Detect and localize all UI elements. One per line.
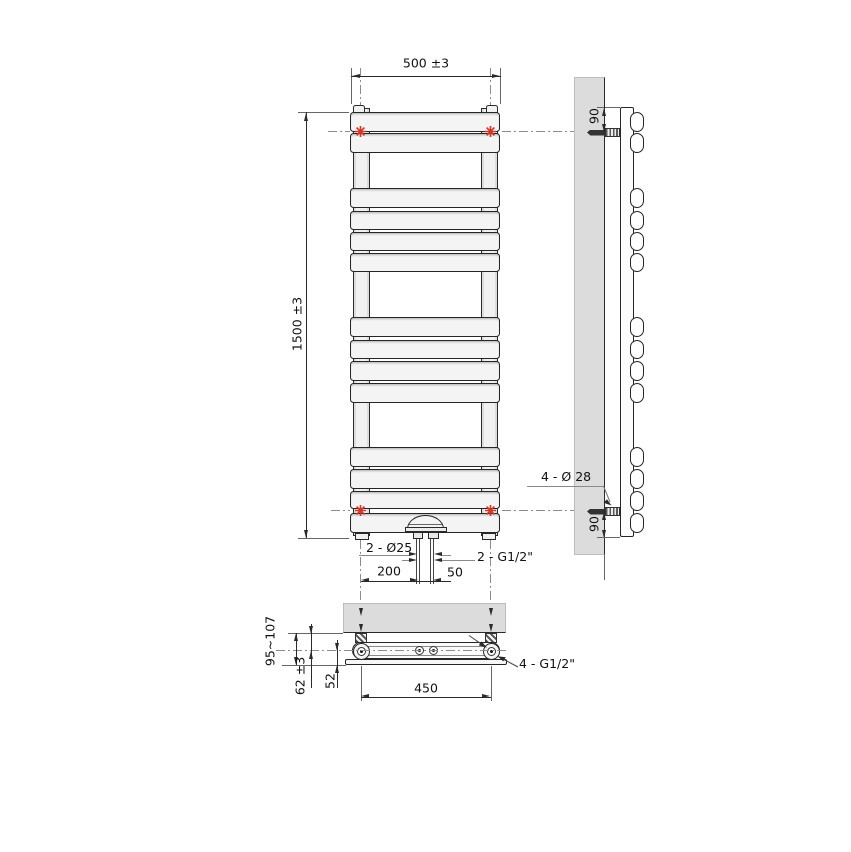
arrowhead xyxy=(335,643,339,651)
radiator-bar xyxy=(350,383,500,403)
screw-arrow xyxy=(489,608,493,616)
arrowhead xyxy=(294,633,298,641)
arrowhead xyxy=(602,108,606,116)
dim-height-label: 1500 ±3 xyxy=(290,297,305,351)
dim-bottom-bracket-label: 90 xyxy=(587,516,602,532)
panel-strip xyxy=(345,659,507,665)
radiator-bar xyxy=(350,361,500,381)
wall-bottom xyxy=(343,603,506,633)
screw-arrow xyxy=(359,624,363,632)
radiator-bar xyxy=(350,317,500,337)
dim-offset-label: 200 xyxy=(377,564,401,579)
dim-top-bracket-label: 90 xyxy=(587,108,602,124)
bar-end-profile xyxy=(630,340,644,359)
dim-width-label: 500 ±3 xyxy=(403,56,449,71)
bar-end-profile xyxy=(630,317,644,337)
arrowhead xyxy=(434,552,442,556)
bracket-bolt-top xyxy=(605,128,620,138)
leader-line xyxy=(441,555,451,556)
bar-end-profile xyxy=(630,232,644,251)
dim-span-label: 450 xyxy=(414,681,438,696)
radiator-bar xyxy=(350,188,500,208)
bar-end-profile xyxy=(630,469,644,489)
mount-centerline-left-top xyxy=(360,68,361,106)
arrowhead xyxy=(304,530,308,538)
bracket-bolt-bottom xyxy=(605,507,620,517)
bracket-axis-bottom-left-seg xyxy=(331,510,350,511)
right-foot xyxy=(482,533,496,540)
arrowhead xyxy=(409,552,417,556)
arrowhead xyxy=(482,694,490,698)
screw-arrow xyxy=(489,624,493,632)
leader-line xyxy=(359,555,410,556)
drawing-sheet: 500 ±3 1500 ±3 2 - Ø25 2 - G1/2" 200 50 xyxy=(0,0,851,852)
radiator-bar xyxy=(350,211,500,230)
arrowhead xyxy=(309,651,313,659)
tube-inner-line xyxy=(368,646,484,647)
arrowhead xyxy=(361,578,369,582)
leader-line xyxy=(441,560,475,561)
bracket-holes-label: 4 - Ø 28 xyxy=(541,469,591,484)
arrowhead xyxy=(602,124,606,132)
arrowhead xyxy=(409,558,417,562)
leader-line xyxy=(527,486,604,487)
arrowhead xyxy=(309,626,313,634)
radiator-bar xyxy=(350,447,500,467)
arrowhead xyxy=(352,74,360,78)
connections-label: 2 - G1/2" xyxy=(477,549,533,564)
screw-arrow xyxy=(359,608,363,616)
valve-nut xyxy=(413,532,424,539)
arrowhead xyxy=(304,113,308,121)
bar-end-profile xyxy=(630,211,644,230)
arrowhead xyxy=(433,578,441,582)
bar-end-profile xyxy=(630,253,644,272)
bracket-axis-top-left-seg xyxy=(328,131,350,132)
valve-plate xyxy=(405,527,447,532)
dim-spacing-label: 50 xyxy=(447,564,463,579)
ext-line xyxy=(500,68,501,104)
radiator-bar xyxy=(350,340,500,359)
wall-face-extension xyxy=(604,555,605,580)
radiator-bar xyxy=(350,491,500,509)
bar-end-profile xyxy=(630,188,644,208)
arrowhead xyxy=(602,512,606,520)
bar-end-profile xyxy=(630,133,644,153)
dim-line-height xyxy=(306,112,307,538)
bar-end-profile xyxy=(630,112,644,132)
radiator-bar xyxy=(350,133,500,153)
dim-line-width xyxy=(351,76,501,77)
tube-inner-line xyxy=(368,655,484,656)
arrowhead xyxy=(434,558,442,562)
radiator-bar xyxy=(350,469,500,489)
arrowhead xyxy=(492,74,500,78)
arrowhead xyxy=(410,578,418,582)
valve-dome-chord xyxy=(409,524,442,525)
arrowhead xyxy=(361,694,369,698)
ext-line xyxy=(491,666,492,701)
valve-nut xyxy=(428,532,439,539)
bar-end-profile xyxy=(630,513,644,534)
dim-front-label: 52 xyxy=(323,673,338,689)
bar-end-profile xyxy=(630,491,644,511)
radiator-bar xyxy=(350,253,500,272)
bar-end-profile xyxy=(630,447,644,467)
bar-end-profile xyxy=(630,383,644,403)
dim-axis-label: 62 ±3 xyxy=(293,657,308,695)
dim-line-span xyxy=(361,697,491,698)
bar-end-profile xyxy=(630,361,644,381)
ext-line xyxy=(597,537,620,538)
pipes-label: 2 - Ø25 xyxy=(366,540,412,555)
left-foot xyxy=(355,533,369,540)
arrowhead xyxy=(335,665,339,673)
bottom-connections-label: 4 - G1/2" xyxy=(519,656,575,671)
radiator-bar xyxy=(350,112,500,132)
dim-depth-label: 95~107 xyxy=(263,616,278,666)
radiator-bar xyxy=(350,232,500,251)
